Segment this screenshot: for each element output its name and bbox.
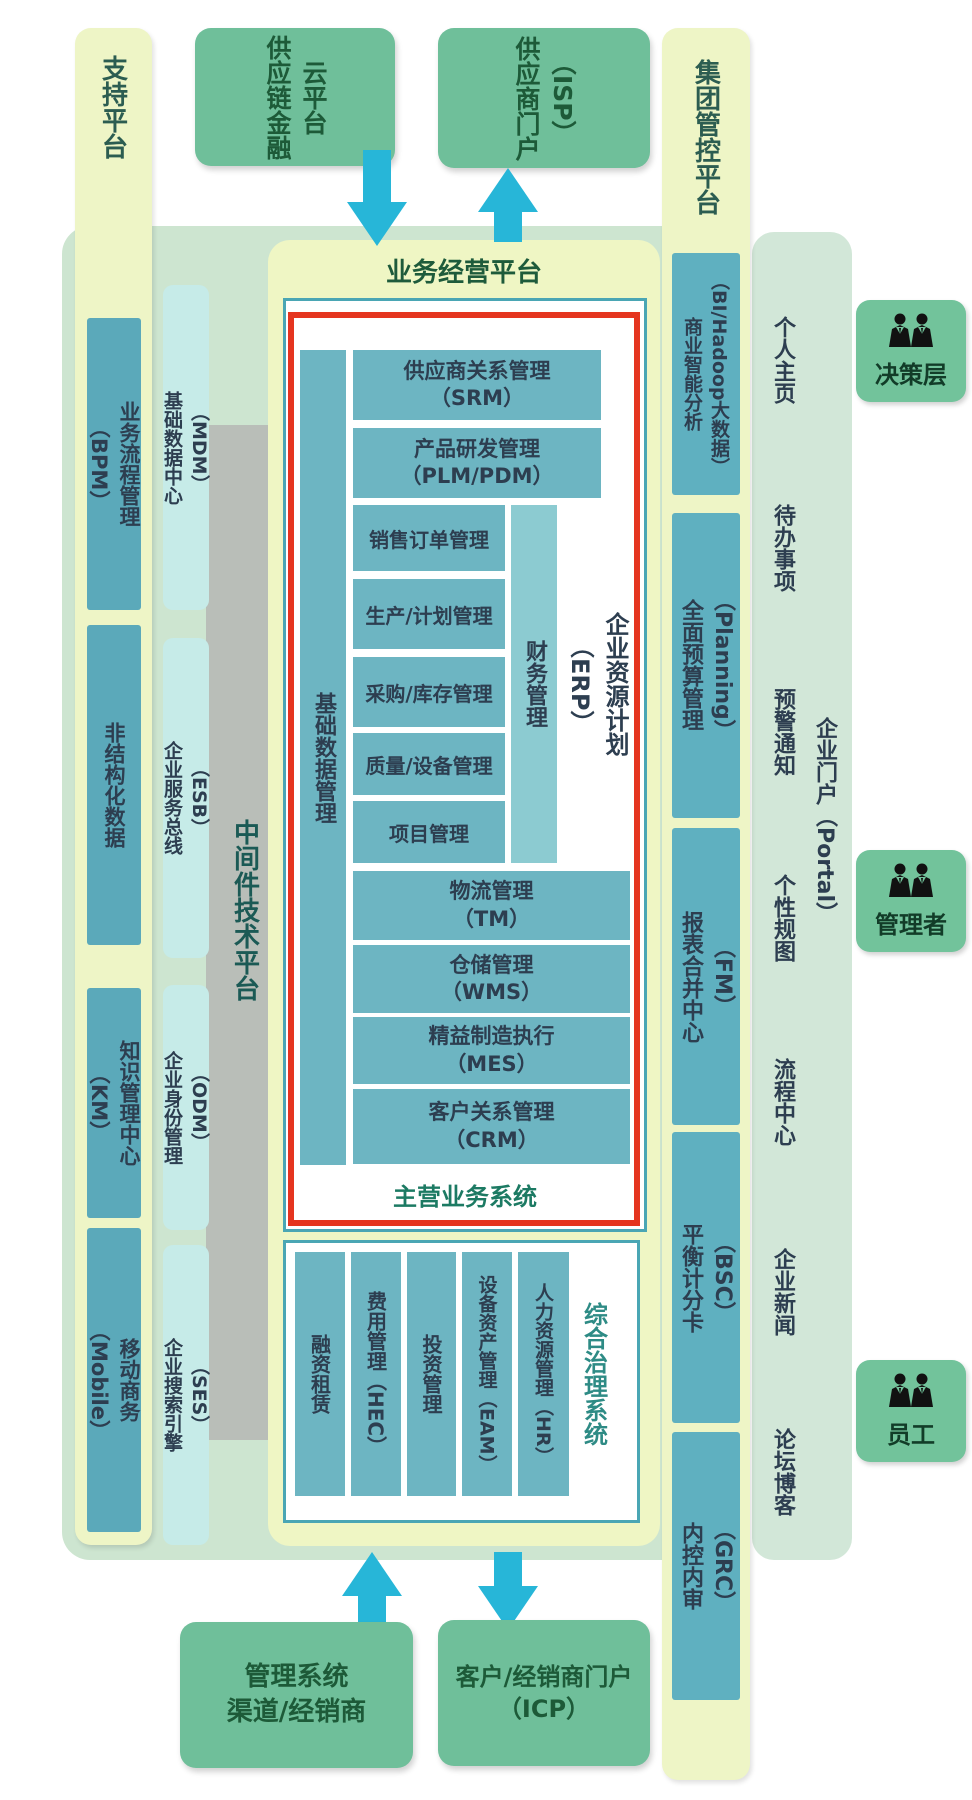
portal-label: 企业门户（Portal）: [806, 700, 842, 940]
eam-box: 设备资产管理（EAM）: [462, 1252, 512, 1496]
supply-chain-finance-cloud-box: 供应链金融 云平台: [195, 28, 395, 166]
portal-item-personal-view: 个性规图: [762, 848, 802, 988]
role-employees: 员工: [856, 1360, 966, 1462]
portal-item-todo: 待办事项: [762, 478, 802, 618]
role-label: 员工: [887, 1415, 935, 1450]
service-column-mdm: 基础数据中心 （MDM）: [163, 285, 209, 610]
srm-box: 供应商关系管理 （SRM）: [353, 350, 601, 420]
support-platform-label: 支持平台: [98, 42, 128, 172]
portal-item-alerts: 预警通知: [762, 662, 802, 802]
portal-item-personal-home: 个人主页: [762, 290, 802, 430]
people-icon: [883, 863, 939, 901]
arrow-down-top-shaft: [363, 150, 391, 204]
support-box-km: 知识管理中心 （KM）: [87, 988, 141, 1218]
service-column-esb: 企业服务总线 （ESB）: [163, 638, 209, 958]
middleware-label: 中间件技术平台: [228, 700, 262, 1120]
architecture-diagram: 中间件技术平台 支持平台 业务流程管理 （BPM） 非结构化数据 知识管理中心 …: [0, 0, 972, 1800]
portal-item-forum-blog: 论坛博客: [762, 1402, 802, 1542]
investment-mgmt-box: 投资管理: [407, 1252, 456, 1496]
project-mgmt-box: 项目管理: [353, 801, 505, 863]
arrow-down-top-icon: [347, 202, 407, 246]
sales-order-box: 销售订单管理: [353, 505, 505, 571]
role-label: 管理者: [875, 905, 947, 940]
support-box-unstructured-data: 非结构化数据: [87, 625, 141, 945]
arrow-down-bottom-shaft: [494, 1552, 522, 1588]
arrow-up-top-icon: [478, 168, 538, 212]
people-icon: [883, 1373, 939, 1411]
people-icon: [883, 313, 939, 351]
balanced-scorecard-box: 平衡计分卡 （BSC）: [672, 1132, 740, 1423]
channel-dealer-mgmt-box: 管理系统 渠道/经销商: [180, 1622, 413, 1768]
portal-item-company-news: 企业新闻: [762, 1222, 802, 1362]
production-planning-box: 生产/计划管理: [353, 579, 505, 649]
hr-box: 人力资源管理（HR）: [518, 1252, 569, 1496]
role-label: 决策层: [875, 355, 947, 390]
finance-mgmt-bar: 财务管理: [511, 505, 557, 863]
financing-lease-box: 融资租赁: [295, 1252, 345, 1496]
role-managers: 管理者: [856, 850, 966, 952]
supplier-portal-box: 供应商门户 （ISP）: [438, 28, 650, 168]
support-box-mobile: 移动商务 （Mobile）: [87, 1228, 141, 1532]
internal-audit-box: 内控内审 （GRC）: [672, 1432, 740, 1700]
report-consolidation-box: 报表合并中心 （FM）: [672, 828, 740, 1125]
main-business-systems-label: 主营业务系统: [300, 1176, 630, 1212]
service-column-ses: 企业搜索引擎 （SES）: [163, 1245, 209, 1545]
crm-box: 客户关系管理 （CRM）: [353, 1089, 630, 1164]
portal-item-process-center: 流程中心: [762, 1032, 802, 1172]
support-box-bpm: 业务流程管理 （BPM）: [87, 318, 141, 610]
base-data-mgmt-bar: 基础数据管理: [300, 350, 346, 1165]
expense-mgmt-box: 费用管理（HEC）: [351, 1252, 401, 1496]
arrow-up-bottom-icon: [342, 1552, 402, 1596]
governance-label: 综合治理系统: [578, 1252, 610, 1496]
plm-box: 产品研发管理 （PLM/PDM）: [353, 428, 601, 498]
customer-dealer-portal-box: 客户/经销商门户 （ICP）: [438, 1620, 650, 1766]
group-control-label: 集团管控平台: [690, 42, 722, 232]
procurement-inventory-box: 采购/库存管理: [353, 657, 505, 727]
mes-box: 精益制造执行 （MES）: [353, 1017, 630, 1084]
bi-analysis-box: 商业智能分析 （BI/Hadoop大数据）: [672, 253, 740, 495]
tm-box: 物流管理 （TM）: [353, 871, 630, 940]
quality-equipment-box: 质量/设备管理: [353, 733, 505, 795]
service-column-odm: 企业身份管理 （ODM）: [163, 985, 209, 1230]
business-operation-title: 业务经营平台: [268, 248, 660, 292]
arrow-up-top-shaft: [494, 210, 522, 242]
erp-label: 企业资源计划 （ERP）: [560, 505, 636, 863]
budget-mgmt-box: 全面预算管理 （Planning）: [672, 513, 740, 818]
role-decision-makers: 决策层: [856, 300, 966, 402]
wms-box: 仓储管理 （WMS）: [353, 945, 630, 1013]
